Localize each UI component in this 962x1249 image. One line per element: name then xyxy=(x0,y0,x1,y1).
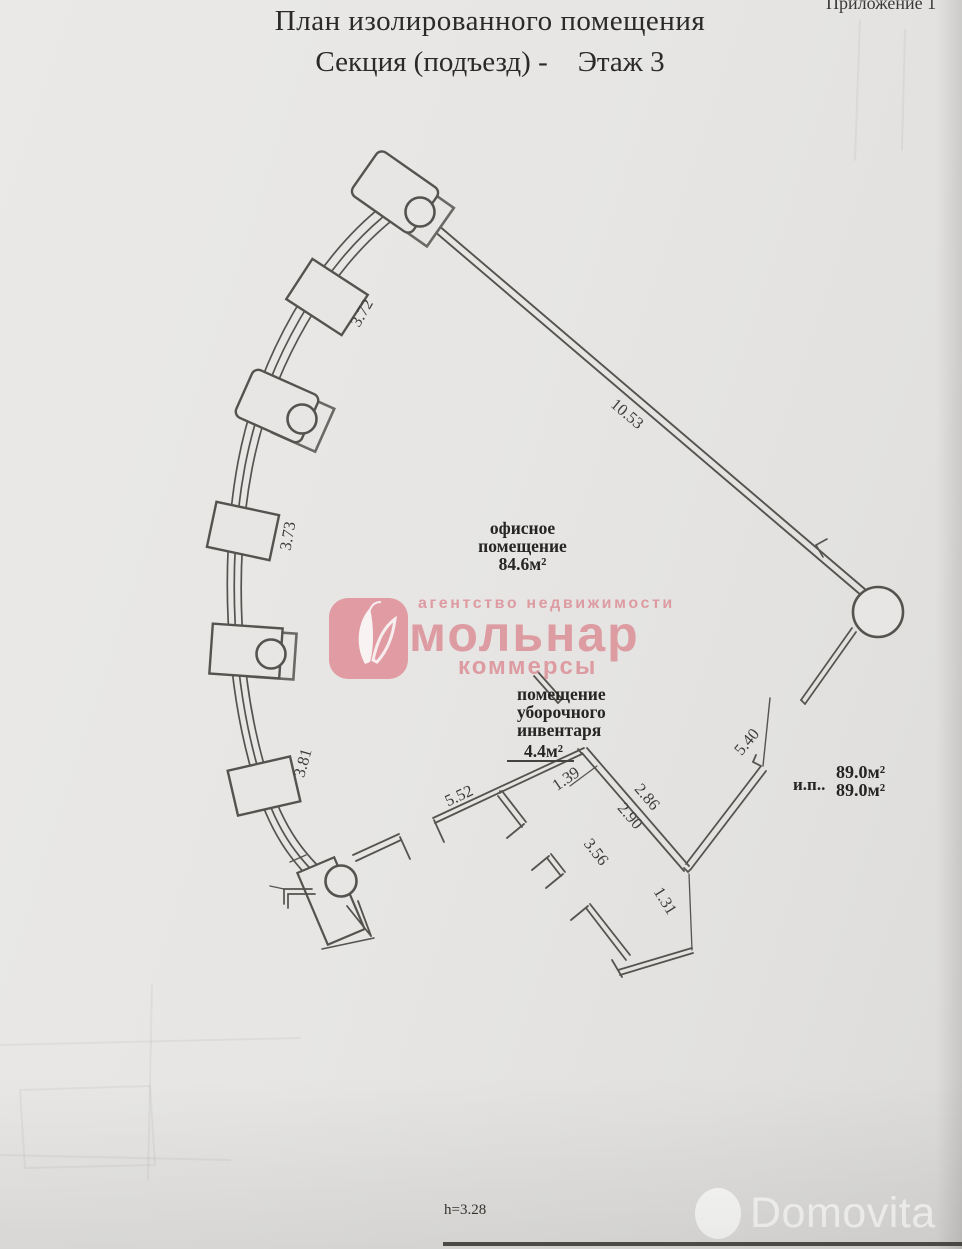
corridor-v-walls xyxy=(582,748,766,950)
window-blocks xyxy=(207,149,454,816)
column-circle xyxy=(406,198,435,227)
area-underline xyxy=(507,760,574,762)
office-room-line2: помещение xyxy=(440,537,605,555)
wall-5-52 xyxy=(353,748,584,861)
office-room-area: 84.6м² xyxy=(440,555,605,573)
isolated-premise-area2: 89.0м² xyxy=(836,781,885,799)
footer-divider-line xyxy=(443,1242,962,1246)
cleaning-room-line1: помещение xyxy=(517,685,637,703)
column-circle xyxy=(257,640,286,669)
domovita-circle-icon xyxy=(695,1188,741,1239)
office-room-line1: офисное xyxy=(440,519,605,537)
cleaning-room-line3: инвентаря xyxy=(517,721,637,739)
isolated-premise-areas: 89.0м² 89.0м² xyxy=(836,763,885,799)
domovita-brand-text: Domovita xyxy=(750,1189,936,1238)
partition-wall-3-56 xyxy=(498,791,630,960)
cleaning-room-label: помещение уборочного инвентаря xyxy=(517,685,637,739)
bottom-junction xyxy=(270,855,374,949)
cleaning-room-area: 4.4м² xyxy=(524,741,563,762)
bleed-through-lines xyxy=(0,20,905,1180)
ceiling-height-note: h=3.28 xyxy=(444,1202,486,1219)
floor-plan-drawing xyxy=(0,0,962,1249)
domovita-logo: Domovita xyxy=(695,1188,936,1239)
window-block xyxy=(228,756,301,815)
isolated-premise-abbr: и.п.. xyxy=(793,775,825,795)
bottom-cap-wall xyxy=(612,948,693,977)
large-column xyxy=(801,587,903,704)
wall-5-40 xyxy=(763,698,770,766)
isolated-premise-area1: 89.0м² xyxy=(836,763,885,781)
column-circle xyxy=(288,405,317,434)
window-block xyxy=(207,502,279,560)
cleaning-room-line2: уборочного xyxy=(517,703,637,721)
office-room-label: офисное помещение 84.6м² xyxy=(440,519,605,573)
scanned-floorplan-page: План изолированного помещения Секция (по… xyxy=(0,0,962,1249)
